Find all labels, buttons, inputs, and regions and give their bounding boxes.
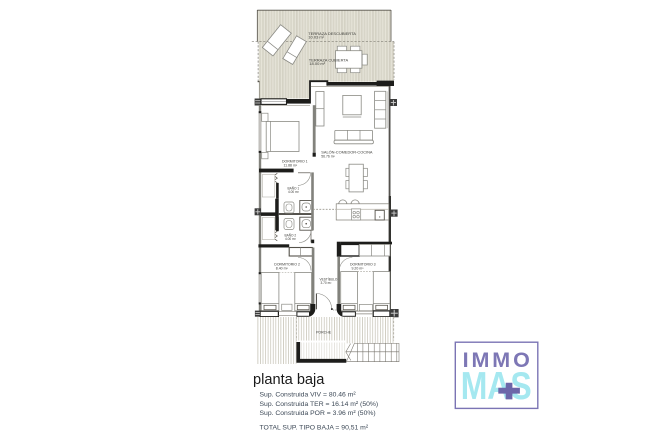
svg-text:9.20 m²: 9.20 m² (352, 267, 365, 271)
svg-text:Sup. Construida VIV = 80.46 m²: Sup. Construida VIV = 80.46 m² (260, 392, 357, 399)
svg-text:PORCHE: PORCHE (316, 330, 332, 334)
svg-text:56.76 m²: 56.76 m² (321, 154, 335, 158)
svg-text:3.70 m²: 3.70 m² (321, 281, 332, 285)
svg-text:4.00 m²: 4.00 m² (288, 190, 299, 194)
svg-text:planta baja: planta baja (253, 372, 325, 388)
svg-text:18.00 m²: 18.00 m² (309, 61, 325, 66)
svg-text:4.00 m²: 4.00 m² (285, 237, 296, 241)
svg-text:Sup. Construida POR = 3.96 m²: Sup. Construida POR = 3.96 m² (50%) (260, 410, 376, 417)
svg-text:TOTAL SUP. TIPO BAJA = 90,51 m: TOTAL SUP. TIPO BAJA = 90,51 m² (260, 424, 369, 431)
svg-text:8.40 m²: 8.40 m² (276, 267, 289, 271)
svg-text:MAS: MAS (461, 365, 532, 408)
svg-text:11.88 m²: 11.88 m² (284, 163, 298, 167)
svg-text:10.03 m²: 10.03 m² (308, 35, 324, 40)
svg-text:Sup. Construida TER = 16.14 m²: Sup. Construida TER = 16.14 m² (50%) (260, 401, 379, 408)
